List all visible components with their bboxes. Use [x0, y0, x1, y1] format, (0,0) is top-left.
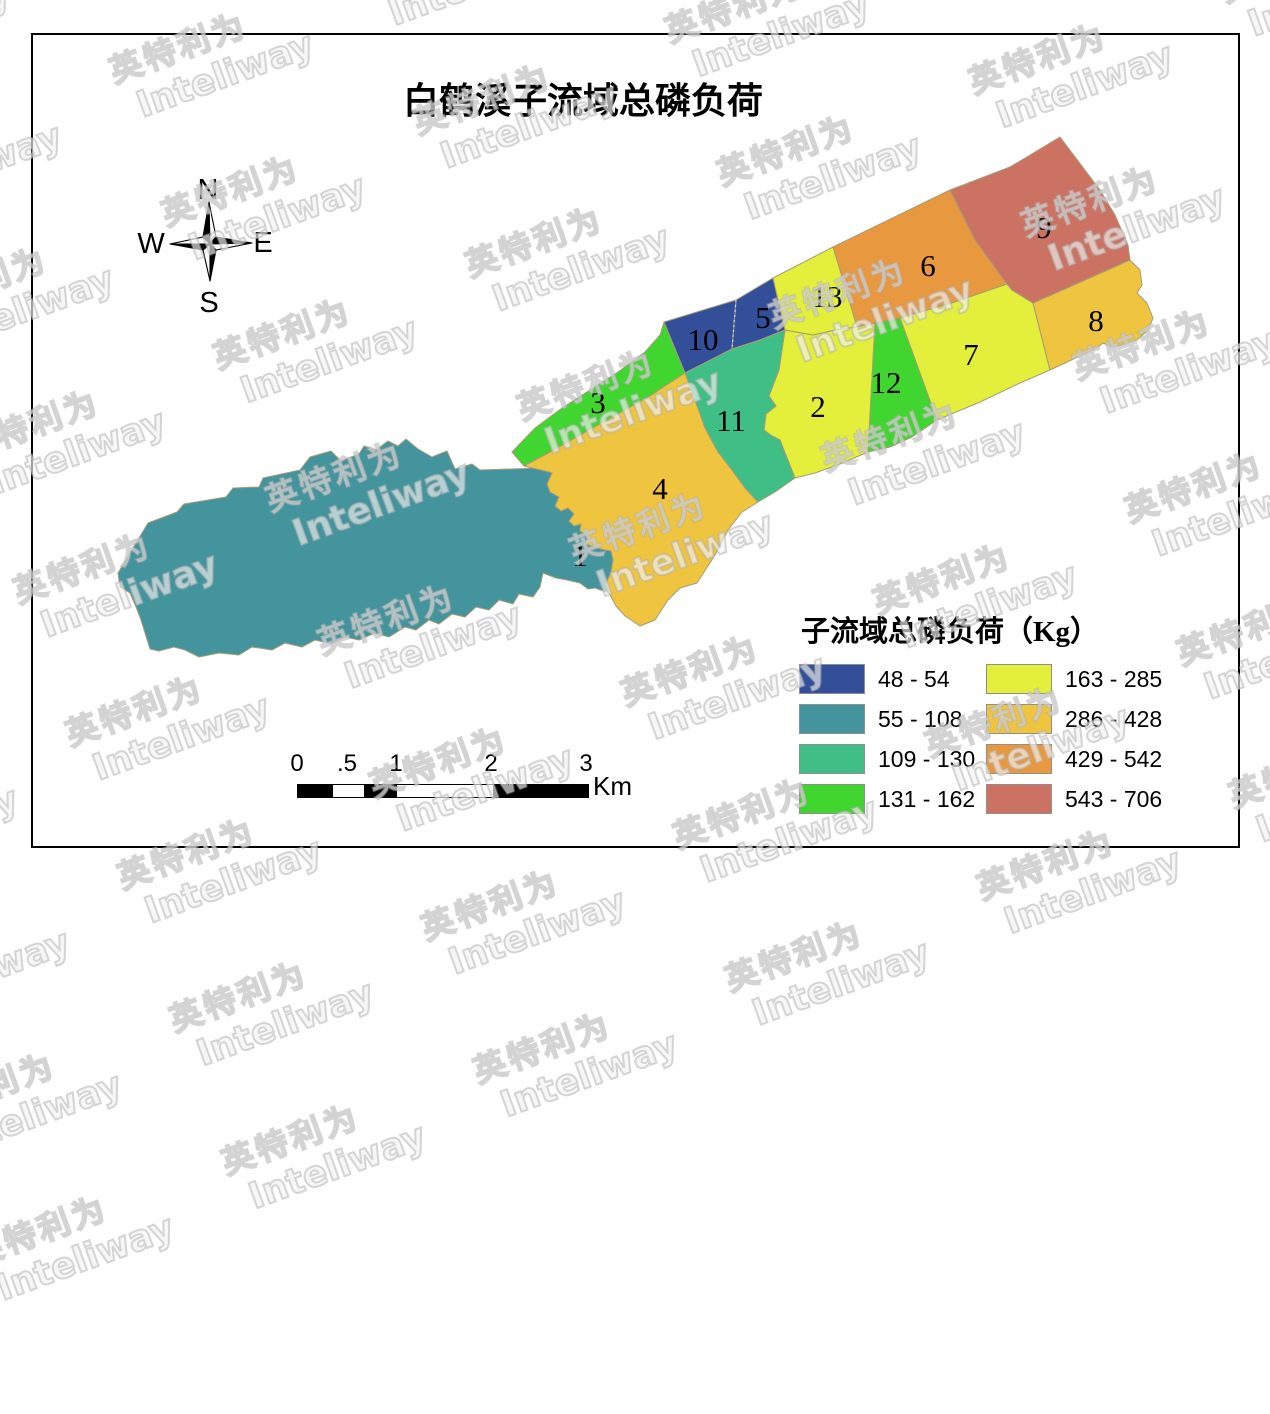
- map-region-label-12: 12: [871, 365, 902, 400]
- watermark-text-en: Inteliway: [0, 1067, 127, 1164]
- legend-class-label: 109 - 130: [878, 746, 975, 773]
- watermark: 英特利为Inteliway: [721, 898, 934, 1038]
- watermark-text-en: Inteliway: [748, 935, 934, 1032]
- legend-item: 286 - 428: [986, 702, 1162, 736]
- watermark-text-cn: 英特利为: [721, 898, 919, 996]
- map-region-label-10: 10: [688, 322, 719, 357]
- legend: 48 - 5455 - 108109 - 130131 - 162163 - 2…: [799, 662, 1239, 830]
- scalebar-tick-label: 3: [564, 750, 608, 778]
- map-region-label-1: 1: [572, 538, 588, 573]
- watermark-text-cn: 英特利为: [0, 887, 60, 985]
- map-region-label-9: 9: [1036, 210, 1052, 245]
- legend-swatch: [799, 744, 865, 774]
- watermark: 英特利为Inteliway: [0, 887, 75, 1027]
- map-region-label-5: 5: [755, 300, 771, 335]
- compass-west-label: W: [137, 228, 165, 260]
- legend-class-label: 286 - 428: [1065, 706, 1162, 733]
- watermark-text-cn: 英特利为: [0, 1173, 164, 1271]
- map-region-label-7: 7: [963, 337, 979, 372]
- watermark-text-en: Inteliway: [0, 924, 75, 1021]
- legend-swatch: [799, 784, 865, 814]
- legend-swatch: [986, 664, 1052, 694]
- scalebar-bar: [297, 784, 589, 798]
- legend-swatch: [799, 664, 865, 694]
- map-region-label-8: 8: [1088, 303, 1104, 338]
- watermark-text-cn: 英特利为: [218, 1081, 416, 1179]
- legend-item: 109 - 130: [799, 742, 975, 776]
- legend-swatch: [986, 704, 1052, 734]
- legend-swatch: [986, 744, 1052, 774]
- map-region-1: [118, 439, 613, 657]
- legend-item: 131 - 162: [799, 782, 975, 816]
- map-region-label-11: 11: [716, 403, 746, 438]
- compass-rose: N W E S: [137, 174, 272, 319]
- legend-title: 子流域总磷负荷（Kg）: [801, 608, 1099, 650]
- scalebar-segment: [333, 785, 364, 797]
- compass-south-label: S: [199, 287, 218, 319]
- compass-north-label: N: [198, 174, 219, 206]
- watermark-text-cn: 英特利为: [0, 1030, 112, 1128]
- map-region-label-6: 6: [920, 248, 936, 283]
- watermark: 英特利为Inteliway: [0, 1030, 127, 1170]
- legend-item: 55 - 108: [799, 702, 962, 736]
- legend-class-label: 48 - 54: [878, 666, 950, 693]
- legend-item: 163 - 285: [986, 662, 1162, 696]
- map-region-label-13: 13: [812, 279, 843, 314]
- legend-item: 48 - 54: [799, 662, 950, 696]
- watermark-text-cn: 英特利为: [166, 938, 364, 1036]
- legend-swatch: [986, 784, 1052, 814]
- legend-class-label: 131 - 162: [878, 786, 975, 813]
- map-region-label-3: 3: [590, 385, 606, 420]
- legend-class-label: 543 - 706: [1065, 786, 1162, 813]
- legend-item: 543 - 706: [986, 782, 1162, 816]
- scalebar-tick-label: .5: [325, 750, 369, 778]
- watermark: 英特利为Inteliway: [469, 989, 682, 1129]
- scalebar-tick-label: 1: [374, 750, 418, 778]
- legend-swatch: [799, 704, 865, 734]
- scalebar-tick-label: 0: [275, 750, 319, 778]
- legend-class-label: 55 - 108: [878, 706, 962, 733]
- watermark-text-en: Inteliway: [0, 1210, 179, 1307]
- compass-east-label: E: [253, 227, 272, 259]
- watermark: 英特利为Inteliway: [0, 1173, 179, 1313]
- page-title: 白鹤溪子流域总磷负荷: [400, 72, 766, 124]
- map-region-label-2: 2: [810, 389, 826, 424]
- watermark-text-cn: 英特利为: [469, 989, 667, 1087]
- watermark-text-en: Inteliway: [496, 1027, 682, 1124]
- watermark-text-en: Inteliway: [444, 884, 630, 981]
- watermark: 英特利为Inteliway: [218, 1081, 431, 1221]
- compass-star-icon: [170, 202, 252, 281]
- scalebar-segment: [298, 785, 333, 797]
- scalebar-segment: [364, 785, 397, 797]
- legend-item: 429 - 542: [986, 742, 1162, 776]
- legend-class-label: 163 - 285: [1065, 666, 1162, 693]
- scalebar-segment: [397, 785, 493, 797]
- scalebar-tick-label: 2: [469, 750, 513, 778]
- watermark-text-en: Inteliway: [244, 1118, 430, 1215]
- map-region-label-4: 4: [652, 471, 668, 506]
- legend-class-label: 429 - 542: [1065, 746, 1162, 773]
- watermark-text-en: Inteliway: [192, 976, 378, 1073]
- watermark: 英特利为Inteliway: [166, 938, 379, 1078]
- scalebar-segment: [493, 785, 588, 797]
- map-regions: [118, 137, 1153, 657]
